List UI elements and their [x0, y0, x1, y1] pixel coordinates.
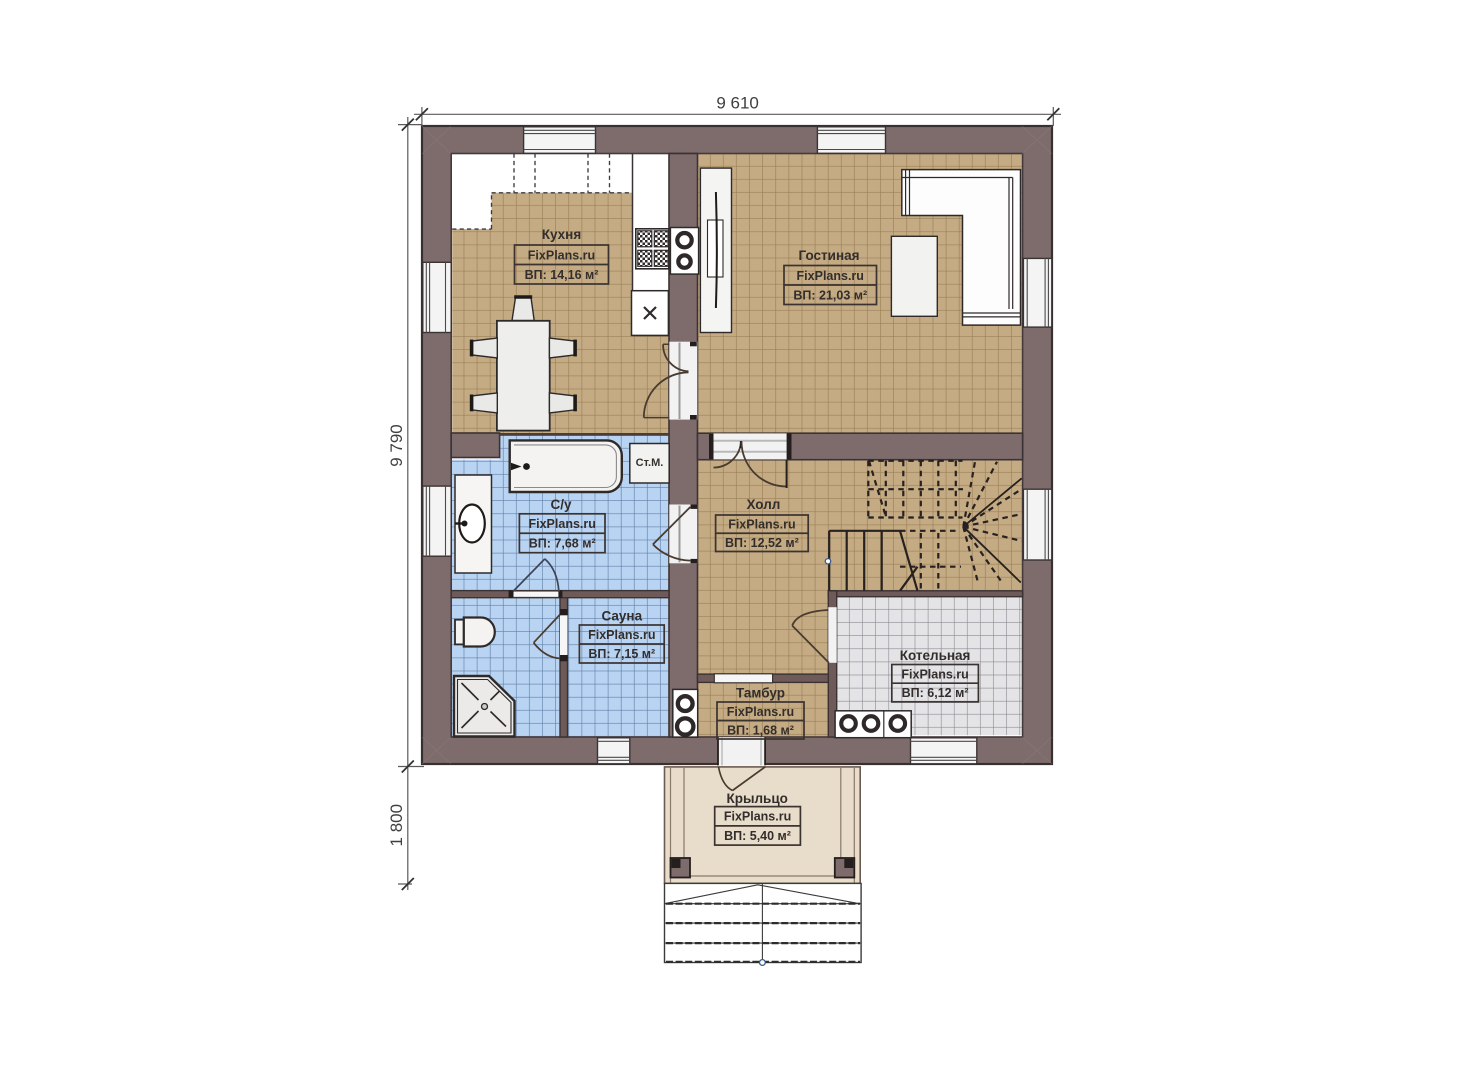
svg-text:9 610: 9 610	[716, 94, 759, 113]
svg-text:ВП: 12,52 м²: ВП: 12,52 м²	[725, 536, 799, 550]
svg-text:FixPlans.ru: FixPlans.ru	[728, 518, 795, 532]
svg-text:1 800: 1 800	[387, 804, 406, 847]
svg-text:Гостиная: Гостиная	[798, 248, 859, 263]
svg-text:ВП: 21,03 м²: ВП: 21,03 м²	[793, 288, 867, 302]
svg-text:FixPlans.ru: FixPlans.ru	[797, 269, 864, 283]
svg-text:FixPlans.ru: FixPlans.ru	[528, 248, 595, 262]
svg-text:Котельная: Котельная	[900, 648, 971, 663]
svg-text:ВП: 6,12 м²: ВП: 6,12 м²	[902, 686, 969, 700]
svg-text:Сауна: Сауна	[602, 609, 643, 624]
svg-text:FixPlans.ru: FixPlans.ru	[901, 667, 968, 681]
svg-text:С/у: С/у	[550, 497, 572, 512]
svg-text:FixPlans.ru: FixPlans.ru	[727, 705, 794, 719]
svg-text:ВП: 5,40 м²: ВП: 5,40 м²	[724, 829, 791, 843]
svg-text:FixPlans.ru: FixPlans.ru	[588, 628, 655, 642]
svg-text:FixPlans.ru: FixPlans.ru	[724, 810, 791, 824]
svg-text:9 790: 9 790	[387, 424, 406, 467]
svg-text:ВП: 7,68 м²: ВП: 7,68 м²	[529, 536, 596, 550]
svg-text:Тамбур: Тамбур	[736, 685, 785, 700]
svg-text:Ст.М.: Ст.М.	[636, 457, 664, 469]
svg-text:Кухня: Кухня	[542, 227, 581, 242]
svg-text:Крыльцо: Крыльцо	[726, 791, 787, 806]
svg-text:FixPlans.ru: FixPlans.ru	[529, 517, 596, 531]
svg-text:ВП: 14,16 м²: ВП: 14,16 м²	[525, 268, 599, 282]
svg-text:ВП: 1,68 м²: ВП: 1,68 м²	[727, 723, 794, 737]
svg-text:ВП: 7,15 м²: ВП: 7,15 м²	[588, 647, 655, 661]
svg-text:Холл: Холл	[746, 497, 780, 512]
